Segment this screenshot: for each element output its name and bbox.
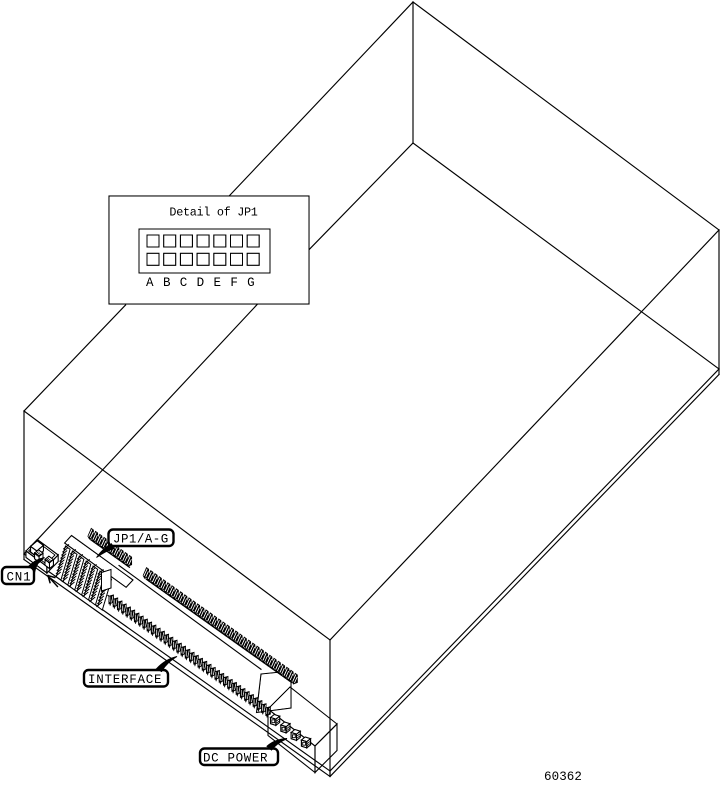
svg-text:B: B (163, 276, 171, 290)
svg-text:Detail of JP1: Detail of JP1 (169, 206, 257, 220)
svg-text:F: F (230, 276, 238, 290)
svg-text:D: D (197, 276, 205, 290)
svg-text:60362: 60362 (544, 770, 582, 784)
svg-text:JP1/A-G: JP1/A-G (113, 533, 169, 547)
svg-text:E: E (213, 276, 221, 290)
svg-text:CN1: CN1 (7, 571, 32, 585)
svg-text:A: A (146, 276, 154, 290)
svg-text:C: C (180, 276, 188, 290)
svg-text:G: G (247, 276, 255, 290)
svg-text:INTERFACE: INTERFACE (88, 673, 162, 687)
svg-text:DC POWER: DC POWER (203, 752, 268, 766)
